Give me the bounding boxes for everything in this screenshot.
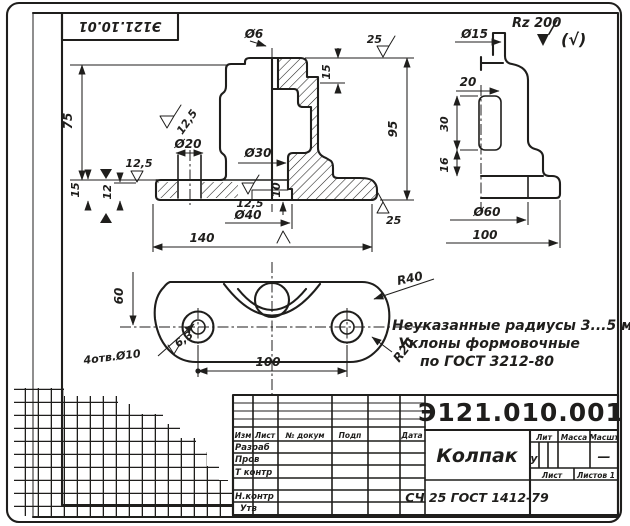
dim-dia6: Ø6 <box>244 27 264 41</box>
dim-offset60: 60 <box>112 288 126 305</box>
dim-dia60: Ø60 <box>473 205 501 219</box>
dim-step15: 15 <box>320 64 333 80</box>
rough-top-value: 25 <box>367 33 383 46</box>
dim-dia40: Ø40 <box>234 208 262 222</box>
all-surfaces-mark: (√) <box>561 30 586 49</box>
tb-row-razrab: Разраб <box>235 442 270 453</box>
tb-col-izm: Изм <box>235 431 252 440</box>
engineering-drawing: Э121.10.01 Ø6 25 15 <box>0 0 630 526</box>
rough-base-value: 25 <box>386 214 402 227</box>
dim-width100s: 100 <box>472 228 497 242</box>
drawing-sheet: Э121.10.01 Ø6 25 15 <box>0 0 630 526</box>
stamp-code: Э121.10.01 <box>79 18 162 33</box>
part-name: Колпак <box>436 445 518 467</box>
tb-masshtab-value: — <box>598 450 611 465</box>
tb-col-podp: Подп <box>339 431 362 440</box>
dim-spacing100: 100 <box>255 355 280 369</box>
dim-height30: 30 <box>438 116 451 132</box>
flange-hatch-mid <box>202 182 238 198</box>
note-line-1: Неуказанные радиусы 3...5 мм <box>392 318 630 334</box>
tb-col-dokum: № докум <box>285 431 325 440</box>
dim-dia30: Ø30 <box>244 146 272 160</box>
rz-roughness: Rz 200 <box>512 16 561 31</box>
dim-depth10: 10 <box>270 182 283 198</box>
note-line-2: Уклоны формовочные <box>398 336 580 352</box>
tb-list-label: Лист <box>541 471 563 480</box>
tb-col-list: Лист <box>254 431 276 440</box>
tb-lit-label: Лит <box>535 433 552 442</box>
doc-number: Э121.010.001 <box>418 398 624 427</box>
tb-listov-label: Листов 1 <box>576 471 615 480</box>
dim-height95: 95 <box>386 121 400 138</box>
tb-row-tkontr: Т контр <box>235 468 272 478</box>
tb-lit-value: у <box>530 452 538 465</box>
tb-massa-label: Масса <box>561 433 587 442</box>
tb-row-utv: Утв <box>240 504 257 514</box>
dim-dia15: Ø15 <box>460 27 488 41</box>
dim-height16: 16 <box>438 157 451 173</box>
tb-row-nkontr: Н.контр <box>235 492 274 502</box>
flange-hatch-left <box>158 182 177 198</box>
dim-dia20: Ø20 <box>174 137 202 151</box>
tb-col-data: Дата <box>400 431 422 440</box>
tb-masshtab-label: Масшт <box>589 433 619 442</box>
dim-width20: 20 <box>460 75 477 89</box>
rough-flange-left-value: 12,5 <box>125 157 152 170</box>
tb-row-prov: Пров <box>235 455 260 465</box>
dim-dot <box>195 368 200 373</box>
dim-height75: 75 <box>61 113 75 130</box>
note-line-3: по ГОСТ 3212-80 <box>420 354 554 370</box>
dim-left12: 12 <box>101 184 114 200</box>
dim-left15: 15 <box>69 182 82 198</box>
dim-width140: 140 <box>189 231 214 245</box>
material: СЧ 25 ГОСТ 1412-79 <box>405 490 549 505</box>
